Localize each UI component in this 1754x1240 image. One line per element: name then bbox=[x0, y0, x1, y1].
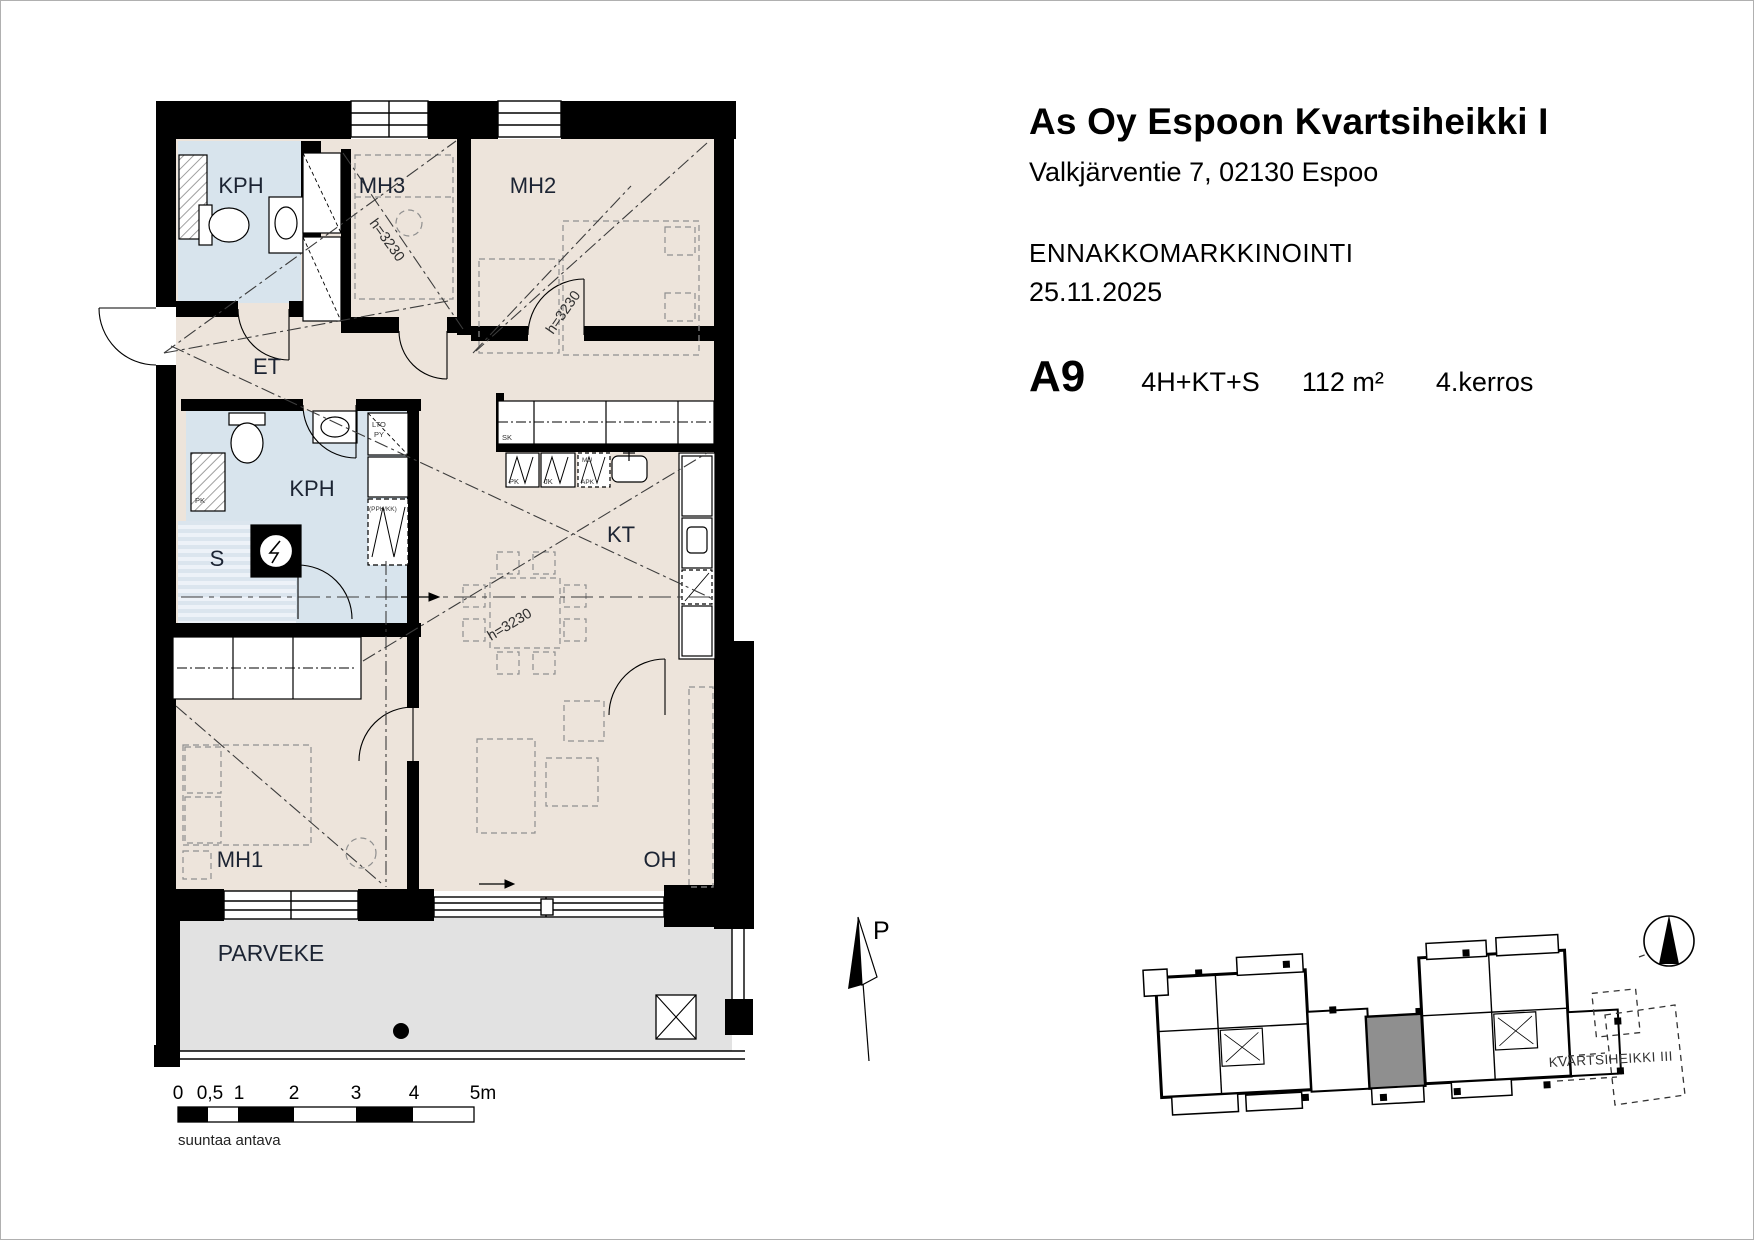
label-sk: SK bbox=[502, 433, 512, 442]
label-washer: PK bbox=[195, 496, 205, 505]
scale-3: 3 bbox=[351, 1083, 362, 1104]
apartment-area: 112 m² bbox=[1302, 367, 1384, 398]
apartment-room-count: 4H+KT+S bbox=[1141, 367, 1260, 398]
floorplan-sheet: KPH MH3 MH2 ET KPH S KT MH1 OH PARVEKE h… bbox=[0, 0, 1754, 1240]
sauna-stove bbox=[259, 534, 293, 568]
room-label-mh3: MH3 bbox=[359, 173, 405, 198]
room-label-et: ET bbox=[253, 354, 281, 379]
apartment-id: A9 bbox=[1029, 352, 1085, 402]
room-label-parveke: PARVEKE bbox=[218, 940, 325, 966]
room-label-kt: KT bbox=[607, 522, 635, 547]
scale-disclaimer: suuntaa antava bbox=[178, 1132, 281, 1149]
site-highlighted-unit bbox=[1366, 1014, 1426, 1089]
room-label-mh1: MH1 bbox=[217, 847, 263, 872]
project-title: As Oy Espoon Kvartsiheikki I bbox=[1029, 101, 1689, 143]
project-address: Valkjärventie 7, 02130 Espoo bbox=[1029, 157, 1689, 188]
window-mh2 bbox=[498, 101, 561, 137]
compass-icon bbox=[1644, 915, 1694, 966]
north-label: P bbox=[873, 917, 890, 945]
label-ppk-kk: (PPK/KK) bbox=[369, 506, 397, 513]
label-py: PY bbox=[374, 430, 384, 439]
scale-bar: 0 0,5 1 2 3 4 5m suuntaa antava bbox=[173, 1083, 496, 1149]
utility-cabinet bbox=[368, 457, 408, 497]
scale-4: 4 bbox=[409, 1083, 420, 1104]
print-date: 25.11.2025 bbox=[1029, 277, 1689, 308]
scale-5m: 5m bbox=[470, 1083, 496, 1104]
apartment-summary: A9 4H+KT+S 112 m² 4.kerros bbox=[1029, 352, 1689, 402]
room-label-oh: OH bbox=[644, 847, 677, 872]
title-block: As Oy Espoon Kvartsiheikki I Valkjärvent… bbox=[1029, 101, 1689, 402]
room-label-kph-top: KPH bbox=[218, 173, 263, 198]
room-label-kph: KPH bbox=[289, 476, 334, 501]
label-apk: APK bbox=[581, 479, 595, 486]
scale-1: 1 bbox=[234, 1083, 245, 1104]
label-pk: PK bbox=[509, 477, 519, 486]
scale-0: 0 bbox=[173, 1083, 184, 1104]
scale-05: 0,5 bbox=[197, 1083, 223, 1104]
balcony-floor bbox=[176, 918, 732, 1051]
label-mu: MU bbox=[582, 457, 592, 464]
label-lto: LTO bbox=[372, 420, 386, 429]
scale-2: 2 bbox=[289, 1083, 300, 1104]
room-label-mh2: MH2 bbox=[510, 173, 556, 198]
marketing-phase: ENNAKKOMARKKINOINTI bbox=[1029, 238, 1689, 269]
entrance-door bbox=[99, 308, 156, 365]
north-arrow: P bbox=[848, 917, 890, 1061]
apartment-floor: 4.kerros bbox=[1436, 367, 1534, 398]
site-plan: KVARTSIHEIKKI III bbox=[1142, 915, 1694, 1116]
toilet-bowl-main bbox=[231, 423, 263, 463]
label-jk: JK bbox=[544, 477, 553, 486]
balcony-drain bbox=[393, 1023, 409, 1039]
toilet-bowl-top bbox=[209, 208, 249, 242]
room-label-sauna: S bbox=[210, 546, 225, 571]
